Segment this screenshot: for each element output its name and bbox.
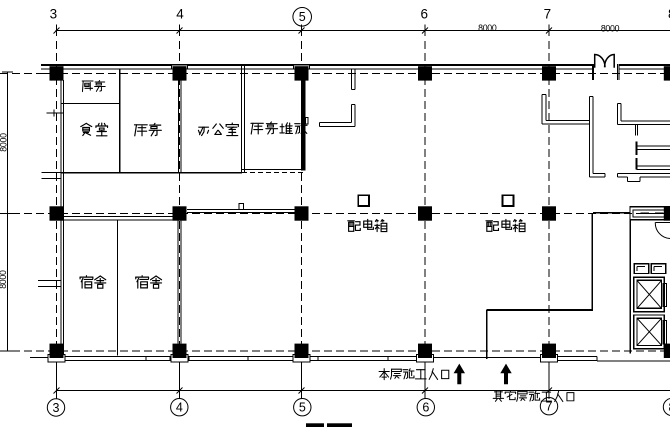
svg-text:7: 7 (544, 6, 552, 21)
svg-text:3: 3 (50, 6, 58, 21)
svg-text:8000: 8000 (601, 24, 620, 34)
svg-text:4: 4 (176, 401, 183, 415)
svg-text:8000: 8000 (0, 133, 9, 152)
svg-text:5: 5 (299, 401, 306, 415)
svg-text:7: 7 (546, 400, 553, 414)
svg-text:4: 4 (176, 6, 184, 21)
svg-text:3: 3 (53, 401, 60, 415)
svg-text:8000: 8000 (478, 23, 497, 33)
svg-text:8000: 8000 (0, 270, 8, 289)
svg-text:6: 6 (421, 6, 429, 21)
svg-text:5: 5 (299, 10, 306, 24)
svg-text:6: 6 (422, 401, 429, 415)
